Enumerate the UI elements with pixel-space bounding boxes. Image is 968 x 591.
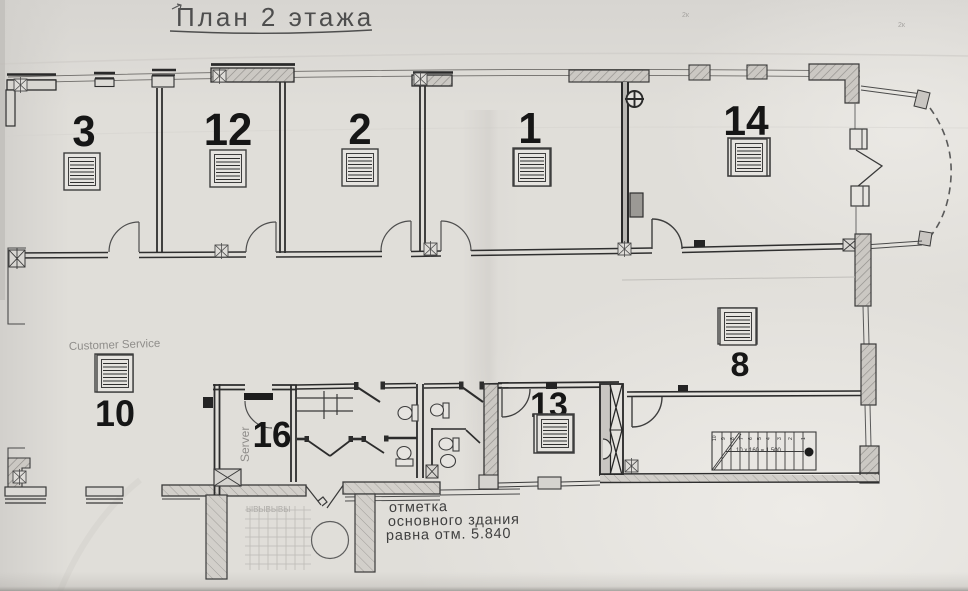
svg-text:14: 14: [723, 97, 768, 144]
svg-text:Server: Server: [238, 427, 252, 462]
svg-text:8: 8: [731, 346, 750, 384]
svg-text:3: 3: [72, 107, 95, 156]
svg-text:1: 1: [801, 437, 807, 440]
svg-text:2: 2: [348, 105, 371, 154]
svg-text:3: 3: [777, 437, 783, 440]
svg-text:1: 1: [518, 104, 541, 153]
svg-text:равна отм. 5.840: равна отм. 5.840: [386, 526, 512, 544]
svg-text:2: 2: [788, 437, 794, 440]
svg-text:10: 10: [95, 393, 135, 435]
svg-text:10: 10: [712, 435, 718, 441]
svg-text:12: 12: [204, 105, 253, 155]
svg-text:2к: 2к: [898, 22, 906, 29]
svg-text:4: 4: [766, 437, 772, 440]
svg-text:16: 16: [253, 415, 292, 456]
svg-text:7: 7: [739, 437, 745, 440]
svg-text:6: 6: [748, 437, 754, 440]
svg-text:План 2 этажа: План 2 этажа: [176, 2, 374, 32]
svg-text:ЫВЫВЫВЫ: ЫВЫВЫВЫ: [246, 505, 290, 514]
svg-text:8: 8: [730, 437, 736, 440]
svg-text:5: 5: [757, 437, 763, 440]
svg-text:2к: 2к: [682, 12, 690, 19]
svg-text:10 x 160 = 1.500: 10 x 160 = 1.500: [736, 448, 782, 454]
svg-text:9: 9: [721, 437, 727, 440]
